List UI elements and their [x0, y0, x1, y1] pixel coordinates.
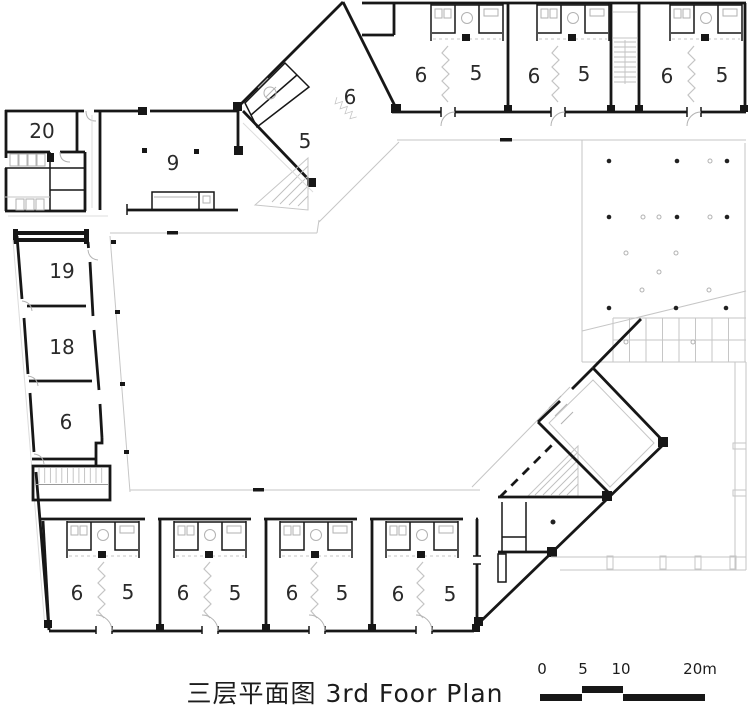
- scale-label-10: 10: [611, 660, 630, 678]
- room-label: 19: [49, 259, 74, 283]
- scale-label-0: 0: [537, 660, 547, 678]
- left-stair: [33, 466, 110, 500]
- skylight-grid: [613, 318, 746, 362]
- room-label: 6: [528, 64, 541, 88]
- room-label: 6: [286, 581, 299, 605]
- room-label: 5: [336, 581, 349, 605]
- bottom-right-wing: [472, 319, 668, 626]
- room-label: 5: [444, 582, 457, 606]
- stairwell: [613, 12, 637, 84]
- room-label: 6: [392, 582, 405, 606]
- stage-block: [152, 192, 214, 210]
- room-label: 18: [49, 335, 74, 359]
- room-label: 5: [470, 61, 483, 85]
- room-label: 6: [177, 581, 190, 605]
- floor-plan-drawing: 209656565651918665656565: [0, 0, 748, 709]
- room-label: 5: [578, 62, 591, 86]
- bottom-wing: [41, 519, 480, 634]
- room-labels: 209656565651918665656565: [29, 61, 728, 606]
- scale-label-5: 5: [578, 660, 588, 678]
- triangle-stair: [255, 158, 308, 210]
- floor-plan-page: 209656565651918665656565 三层平面图 3rd Foor …: [0, 0, 748, 709]
- room-label: 20: [29, 119, 54, 143]
- room-label: 5: [229, 581, 242, 605]
- room-label: 6: [71, 581, 84, 605]
- room-label: 5: [122, 580, 135, 604]
- room-label: 6: [661, 64, 674, 88]
- terrace: [582, 140, 746, 362]
- room-label: 6: [344, 85, 357, 109]
- column-dots: [607, 159, 730, 311]
- scale-label-20: 20m: [683, 660, 717, 678]
- scale-segment-1: [540, 694, 582, 701]
- room-label: 5: [299, 129, 312, 153]
- scale-segment-2: [582, 686, 623, 693]
- room-label: 6: [415, 63, 428, 87]
- room-label: 5: [716, 63, 729, 87]
- plan-title: 三层平面图 3rd Foor Plan: [150, 674, 540, 709]
- diagonal-connector-wing: [233, 2, 401, 210]
- room-label: 6: [60, 410, 73, 434]
- column-dots-light: [624, 159, 712, 344]
- scale-bar: 0 5 10 20m: [540, 652, 710, 704]
- room-label: 9: [167, 151, 180, 175]
- entry-bridge: [13, 229, 89, 244]
- scale-segment-3: [623, 694, 705, 701]
